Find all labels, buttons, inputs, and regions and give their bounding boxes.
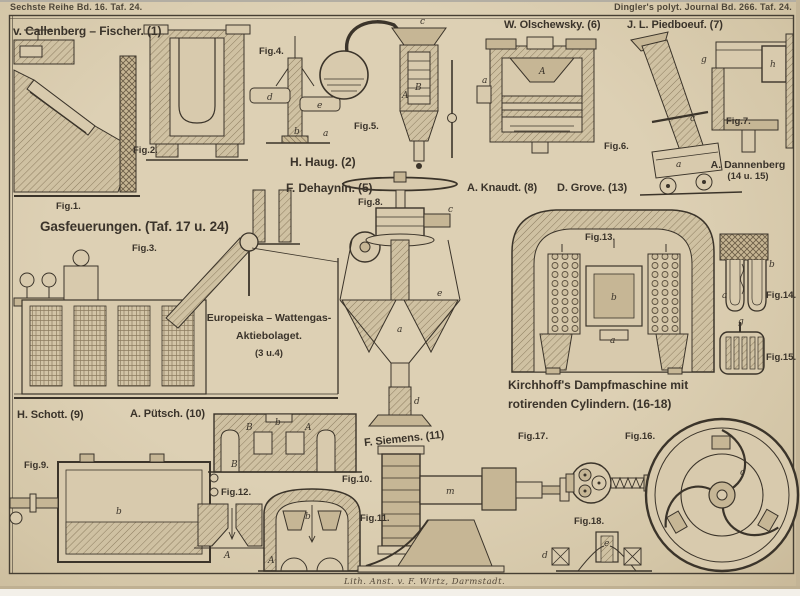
part-letter: A — [304, 423, 312, 433]
fig-label-1: Fig.1. — [56, 201, 81, 212]
fig-label-2: Fig.2. — [133, 145, 158, 156]
caption-dannenberg: A. Dannenberg (14 u. 15) — [700, 159, 796, 182]
part-letter: A — [267, 556, 275, 566]
part-letter: g — [738, 317, 744, 327]
plate-canvas: d e b a c A B A a g c a h c e a d b B b … — [0, 0, 800, 596]
caption-olschewsky: W. Olschewsky. (6) — [504, 19, 600, 31]
fig-2-drawing — [144, 25, 250, 160]
part-letter: d — [542, 551, 548, 561]
part-letter: A — [401, 91, 409, 101]
part-letter: b — [769, 260, 775, 270]
caption-europeiska: Europeiska – Wattengas- Aktiebolaget. (3… — [203, 309, 335, 362]
caption-kirchhoff: Kirchhoff's Dampfmaschine mit rotirenden… — [508, 376, 740, 414]
caption-haug: H. Haug. (2) — [290, 155, 355, 169]
part-letter: b — [116, 507, 122, 517]
caption-gasfeuerungen: Gasfeuerungen. (Taf. 17 u. 24) — [40, 219, 229, 234]
part-letter: c — [690, 114, 695, 124]
part-letter: a — [722, 291, 727, 301]
part-letter: c — [420, 17, 425, 27]
part-letter: B — [245, 423, 253, 433]
fig-label-8: Fig.8. — [358, 197, 383, 208]
fig-label-7: Fig.7. — [726, 116, 751, 127]
scan-edge-bottom — [0, 589, 800, 596]
fig-12-drawing — [194, 504, 266, 548]
fig-16-drawing — [646, 419, 798, 571]
lithographer-imprint: Lith. Anst. v. F. Wirtz, Darmstadt. — [344, 577, 505, 587]
fig-label-3: Fig.3. — [132, 243, 157, 254]
part-letter: A — [223, 551, 231, 561]
part-letter: d — [267, 93, 273, 103]
caption-europeiska-line1: Europeiska – Wattengas- — [203, 309, 335, 327]
part-letter: c — [448, 205, 453, 215]
part-letter: a — [676, 160, 681, 170]
fig-1-drawing — [14, 30, 140, 196]
caption-dannenberg-figs: (14 u. 15) — [700, 171, 796, 182]
part-letter: a — [397, 325, 402, 335]
part-letter: c — [740, 468, 745, 478]
caption-kirchhoff-line2: rotirenden Cylindern. (16-18) — [508, 395, 740, 414]
part-letter: e — [437, 289, 442, 299]
fig-15-drawing — [720, 322, 764, 374]
caption-dannenberg-name: A. Dannenberg — [700, 159, 796, 171]
caption-knaudt: A. Knaudt. (8) — [467, 182, 537, 194]
part-letter: b — [305, 512, 311, 522]
caption-schott: H. Schott. (9) — [17, 409, 83, 421]
part-letter: e — [317, 101, 322, 111]
fig-5-drawing — [320, 22, 457, 169]
fig-label-13: Fig.13. — [585, 232, 615, 243]
part-letter: a — [610, 336, 615, 346]
part-letter: g — [701, 55, 707, 65]
part-letter: B — [414, 83, 422, 93]
fig-label-5: Fig.5. — [354, 121, 379, 132]
caption-grove: D. Grove. (13) — [557, 182, 627, 194]
caption-kirchhoff-line1: Kirchhoff's Dampfmaschine mit — [508, 376, 740, 395]
part-letter: A — [538, 67, 546, 77]
fig-label-16: Fig.16. — [625, 431, 655, 442]
fig-label-15: Fig.15. — [766, 352, 796, 363]
caption-puetsch: A. Pütsch. (10) — [130, 408, 205, 420]
part-letter: m — [446, 487, 455, 497]
part-letter: e — [604, 539, 609, 549]
fig-label-18: Fig.18. — [574, 516, 604, 527]
part-letter: B — [230, 460, 238, 470]
caption-europeiska-line2: Aktiebolaget. — [203, 327, 335, 345]
fig-label-14: Fig.14. — [766, 290, 796, 301]
part-letter: b — [275, 418, 281, 428]
part-letter: d — [414, 397, 420, 407]
fig-label-10: Fig.10. — [342, 474, 372, 485]
journal-title-label: Dingler's polyt. Journal Bd. 266. Taf. 2… — [614, 2, 792, 12]
fig-6-drawing — [477, 37, 596, 153]
part-letter: b — [294, 127, 300, 137]
part-letter: b — [611, 293, 617, 303]
fig-label-4: Fig.4. — [259, 46, 284, 57]
caption-dehaynin: F. Dehaynin. (5) — [286, 181, 372, 195]
fig-label-17: Fig.17. — [518, 431, 548, 442]
part-letter: h — [770, 60, 776, 70]
fig-17-drawing — [358, 446, 569, 572]
plate-artwork: d e b a c A B A a g c a h c e a d b B b … — [0, 0, 800, 596]
fig-7-section-drawing — [712, 34, 793, 152]
fig-label-9: Fig.9. — [24, 460, 49, 471]
fig-8-drawing — [340, 172, 460, 426]
part-letter: a — [482, 76, 487, 86]
caption-europeiska-line3: (3 u.4) — [203, 346, 335, 363]
fig-17-rotor-drawing — [566, 463, 652, 503]
plate-series-label: Sechste Reihe Bd. 16. Taf. 24. — [10, 2, 142, 12]
caption-piedboeuf: J. L. Piedboeuf. (7) — [627, 19, 723, 31]
fig-label-12: Fig.12. — [221, 487, 251, 498]
caption-callenberg-fischer: v. Callenberg – Fischer. (1) — [13, 24, 161, 38]
fig-label-11: Fig.11. — [360, 513, 390, 524]
part-letter: a — [323, 129, 328, 139]
fig-18-drawing — [552, 532, 652, 571]
fig-label-6: Fig.6. — [604, 141, 629, 152]
